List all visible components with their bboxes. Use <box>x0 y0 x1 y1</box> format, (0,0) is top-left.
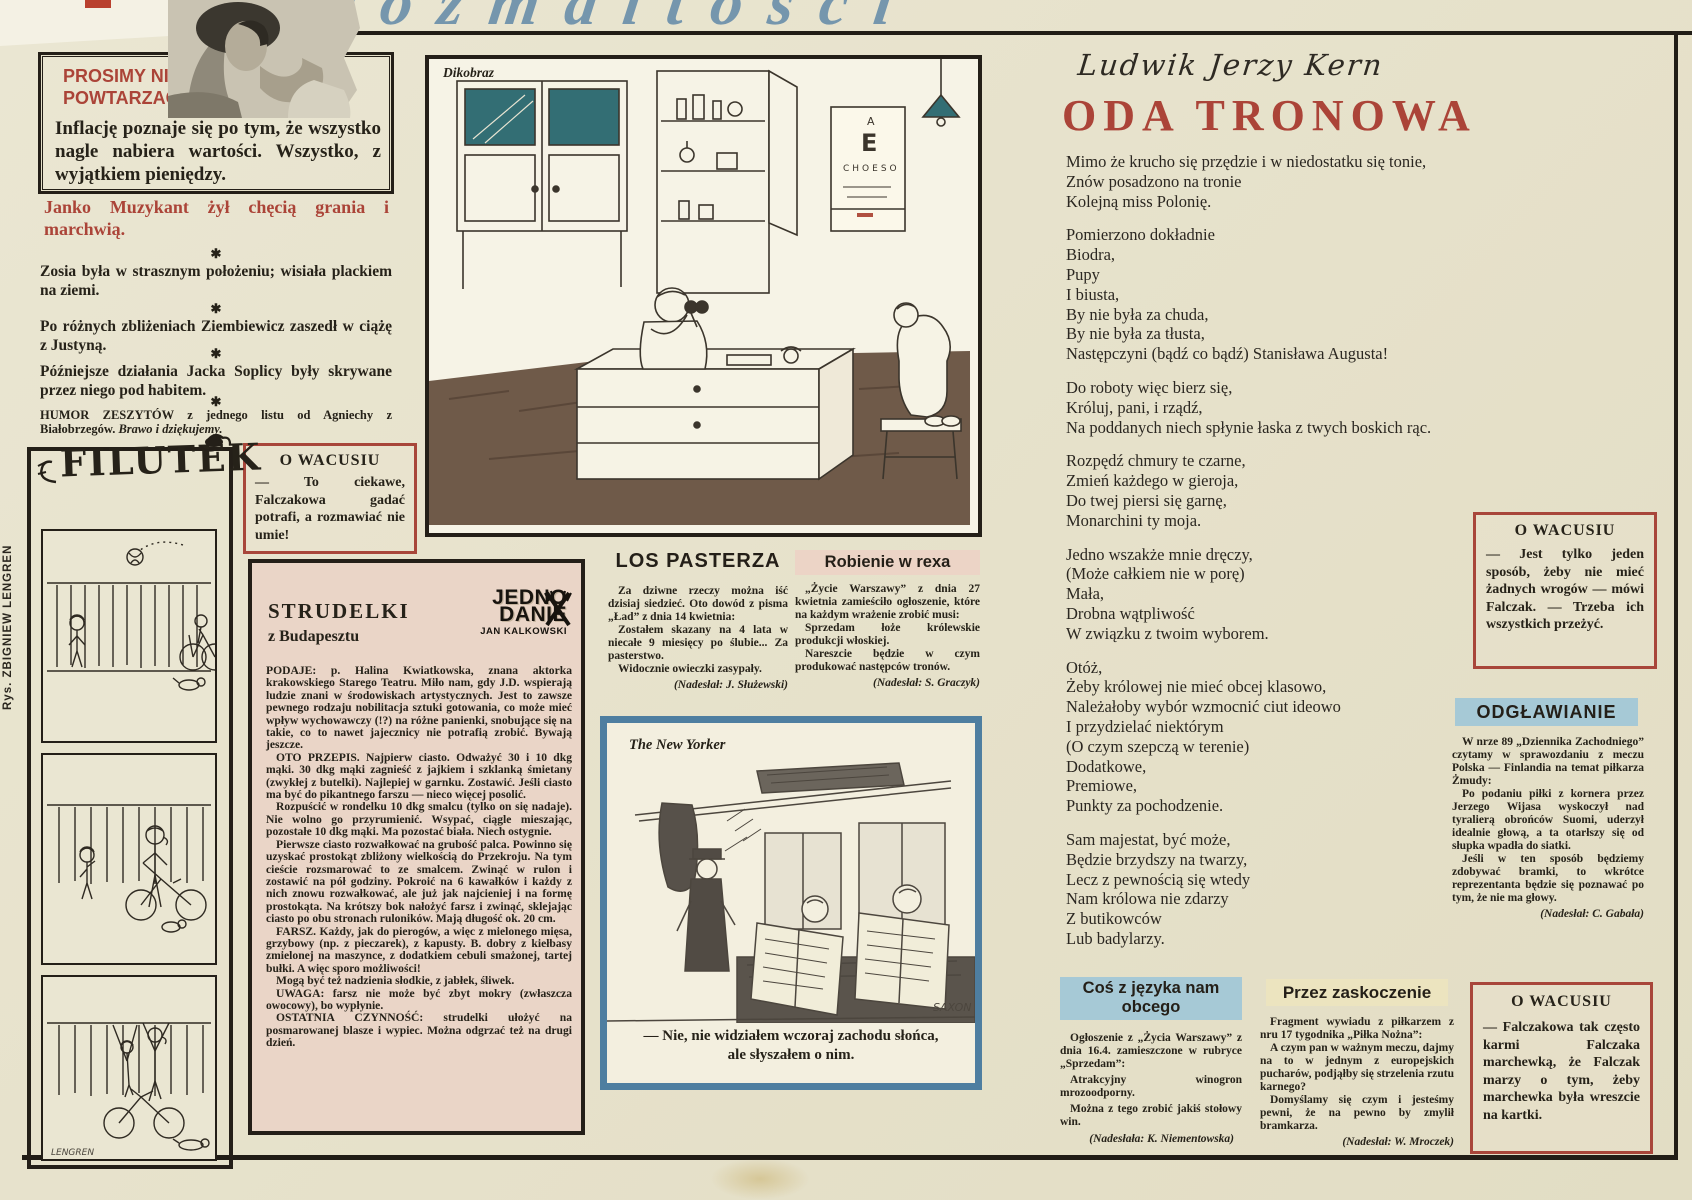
crossed-cutlery-icon <box>543 587 573 629</box>
aphorism-separator: ✱ <box>40 246 392 262</box>
strudelki-body: PODAJE: p. Halina Kwiatkowska, znana akt… <box>266 665 572 1050</box>
los-pasterza-credit: (Nadesłał: J. Służewski) <box>608 679 788 691</box>
filutek-figure-icon <box>198 426 232 460</box>
wacusiu-box-2: O WACUSIU — Jest tylko jeden sposób, żeb… <box>1473 512 1657 669</box>
prosimy-body: Inflację poznaje się po tym, że wszystko… <box>55 117 381 186</box>
top-rule <box>335 31 1692 35</box>
cos-obcego-title-line2: obcego <box>1060 998 1242 1017</box>
odglawianie-p2: Po podaniu piłki z kornera przez Jerzego… <box>1452 788 1644 853</box>
cos-obcego-p1: Ogłoszenie z „Życia Warszawy” z dnia 16.… <box>1060 1032 1242 1071</box>
bottom-rule <box>22 1155 1678 1160</box>
jedno-danie-logo: JEDNO DANIE JAN KALKOWSKI <box>480 589 567 640</box>
los-pasterza-p3: Widocznie owieczki zasypały. <box>608 663 788 676</box>
cos-obcego-title-line1: Coś z języka nam <box>1060 979 1242 998</box>
robienie-column: Robienie w rexa „Życie Warszawy” z dnia … <box>795 550 980 689</box>
eye-chart-row-2: E <box>861 129 877 157</box>
eye-chart-row-1: A <box>867 115 875 128</box>
strudelki-subtitle: z Budapesztu <box>268 628 410 646</box>
odglawianie-credit: (Nadesłał: C. Gabała) <box>1452 908 1644 920</box>
przez-p1: Fragment wywiadu z piłkarzem z nru 17 ty… <box>1260 1016 1454 1042</box>
strudelki-paragraph: OTO PRZEPIS. Najpierw ciasto. Odważyć 30… <box>266 752 572 802</box>
cos-obcego-title: Coś z języka nam obcego <box>1060 977 1242 1020</box>
cos-obcego-p2: Atrakcyjny winogron mrozoodporny. <box>1060 1074 1242 1100</box>
przez-p3: Domyślamy się czym i jesteśmy pewni, że … <box>1260 1094 1454 1133</box>
wacusiu-1-body: — To ciekawe, Falczakowa gadać potrafi, … <box>255 474 405 544</box>
cos-obcego-credit: (Nadesłała: K. Niementowska) <box>1060 1133 1242 1145</box>
print-fragment-red <box>85 0 111 8</box>
robienie-p2: Sprzedam łoże królewskie produkcji włosk… <box>795 622 980 648</box>
przez-credit: (Nadesłał: W. Mroczek) <box>1260 1136 1454 1148</box>
odglawianie-p3: Jeśli w ten sposób będziemy zdobywać bra… <box>1452 853 1644 905</box>
new-yorker-cartoon-drawing: SAXON <box>607 761 975 1023</box>
przez-p2: A czym pan w ważnym meczu, dajmy na to w… <box>1260 1042 1454 1094</box>
new-yorker-caption: — Nie, nie widziałem wczoraj zachodu sło… <box>641 1027 941 1065</box>
paper-stain <box>710 1158 810 1200</box>
robienie-credit: (Nadesłał: S. Graczyk) <box>795 677 980 689</box>
wacusiu-box-3: O WACUSIU — Falczakowa tak często karmi … <box>1470 982 1653 1154</box>
przez-column: Fragment wywiadu z piłkarzem z nru 17 ty… <box>1260 1016 1454 1148</box>
prosimy-title-line1: PROSIMY NIE <box>63 65 184 87</box>
filutek-strip-panel-3: LENGREN <box>41 975 217 1161</box>
strudelki-paragraph: Mogą być też nadzienia słodkie, z jabłek… <box>266 975 572 987</box>
wacusiu-box-1: O WACUSIU — To ciekawe, Falczakowa gadać… <box>243 443 417 554</box>
janko-heading: Janko Muzykant żył chęcią grania i march… <box>44 196 389 240</box>
cos-obcego-column: Ogłoszenie z „Życia Warszawy” z dnia 16.… <box>1060 1032 1242 1145</box>
cos-obcego-p3: Można z tego zrobić jakiś stołowy win. <box>1060 1103 1242 1129</box>
new-yorker-cartoon-frame: The New Yorker <box>600 716 982 1090</box>
strudelki-paragraph: UWAGA: farsz nie może być zbyt mokry (zw… <box>266 988 572 1013</box>
dikobraz-label: Dikobraz <box>443 65 494 81</box>
strudelki-paragraph: OSTATNIA CZYNNOŚĆ: strudelki ułożyć na p… <box>266 1012 572 1049</box>
los-pasterza-p1: Za dziwne rzeczy można iść dzisiaj siedz… <box>608 585 788 624</box>
robienie-title: Robienie w rexa <box>795 550 980 575</box>
aphorism-separator: ✱ <box>40 301 392 317</box>
oda-title: ODA TRONOWA <box>1062 90 1477 141</box>
filutek-comic-box: LENGREN <box>27 447 233 1169</box>
new-yorker-label: The New Yorker <box>629 737 725 754</box>
los-pasterza-p2: Zostałem skazany na 4 lata w niecałe 9 m… <box>608 624 788 663</box>
oda-author: Ludwik Jerzy Kern <box>1076 48 1385 82</box>
los-pasterza-title: LOS PASTERZA <box>608 550 788 573</box>
oda-stanza-3: Do roboty więc bierz się, Króluj, pani, … <box>1066 378 1556 437</box>
filutek-strip-panel-1 <box>41 529 217 743</box>
wacusiu-3-body: — Falczakowa tak często karmi Falczaka m… <box>1483 1019 1640 1124</box>
filutek-strip-panel-2 <box>41 753 217 965</box>
filutek-flourish-icon <box>34 456 60 486</box>
oda-stanza-2: Pomierzono dokładnie Biodra, Pupy I bius… <box>1066 225 1556 364</box>
wacusiu-2-title: O WACUSIU <box>1486 522 1644 540</box>
strudelki-paragraph: Rozpuścić w rondelku 10 dkg smalcu (tylk… <box>266 801 572 838</box>
filutek-header: FILUTEK <box>40 438 235 504</box>
oda-stanza-1: Mimo że krucho się przędzie i w niedosta… <box>1066 152 1556 211</box>
los-pasterza-column: LOS PASTERZA Za dziwne rzeczy można iść … <box>608 550 788 691</box>
strudelki-box: STRUDELKI z Budapesztu JEDNO DANIE JAN K… <box>248 559 585 1135</box>
artist-credit-vertical: Rys. ZBIGNIEW LENGREN <box>2 500 14 710</box>
newspaper-page: rozmaitości PROSIMY NIE POWTARZAĆ. Infla… <box>0 0 1692 1200</box>
wacusiu-3-title: O WACUSIU <box>1483 993 1640 1011</box>
right-border-rule <box>1674 31 1678 1160</box>
odglawianie-p1: W nrze 89 „Dziennika Zachodniego” czytam… <box>1452 736 1644 788</box>
woman-photo <box>168 0 360 118</box>
strudelki-title-block: STRUDELKI z Budapesztu <box>268 599 410 646</box>
dikobraz-cartoon-frame: Dikobraz A E CHOESO <box>425 55 982 537</box>
wacusiu-1-title: O WACUSIU <box>255 452 405 470</box>
eye-chart: A E CHOESO <box>831 107 921 217</box>
lengren-signature: LENGREN <box>51 1148 94 1158</box>
odglawianie-column: W nrze 89 „Dziennika Zachodniego” czytam… <box>1452 736 1644 920</box>
strudelki-paragraph: PODAJE: p. Halina Kwiatkowska, znana akt… <box>266 665 572 752</box>
strudelki-title: STRUDELKI <box>268 599 410 624</box>
saxon-signature: SAXON <box>933 1001 972 1014</box>
strudelki-paragraph: Pierwsze ciasto rozwałkować na grubość p… <box>266 839 572 926</box>
robienie-p1: „Życie Warszawy” z dnia 27 kwietnia zami… <box>795 583 980 622</box>
aphorism-separator: ✱ <box>40 346 392 362</box>
odglawianie-title: ODGŁAWIANIE <box>1455 698 1638 726</box>
wacusiu-2-body: — Jest tylko jeden sposób, żeby nie mieć… <box>1486 546 1644 634</box>
aphorism-1: Zosia była w strasznym położeniu; wisiał… <box>40 262 392 300</box>
robienie-p3: Nareszcie będzie w czym produkować nastę… <box>795 648 980 674</box>
strudelki-paragraph: FARSZ. Każdy, jak do pierogów, a więc z … <box>266 926 572 976</box>
prosimy-title-line2: POWTARZAĆ. <box>63 87 184 109</box>
przez-title: Przez zaskoczenie <box>1266 979 1448 1006</box>
eye-chart-row-3: CHOESO <box>843 164 900 174</box>
